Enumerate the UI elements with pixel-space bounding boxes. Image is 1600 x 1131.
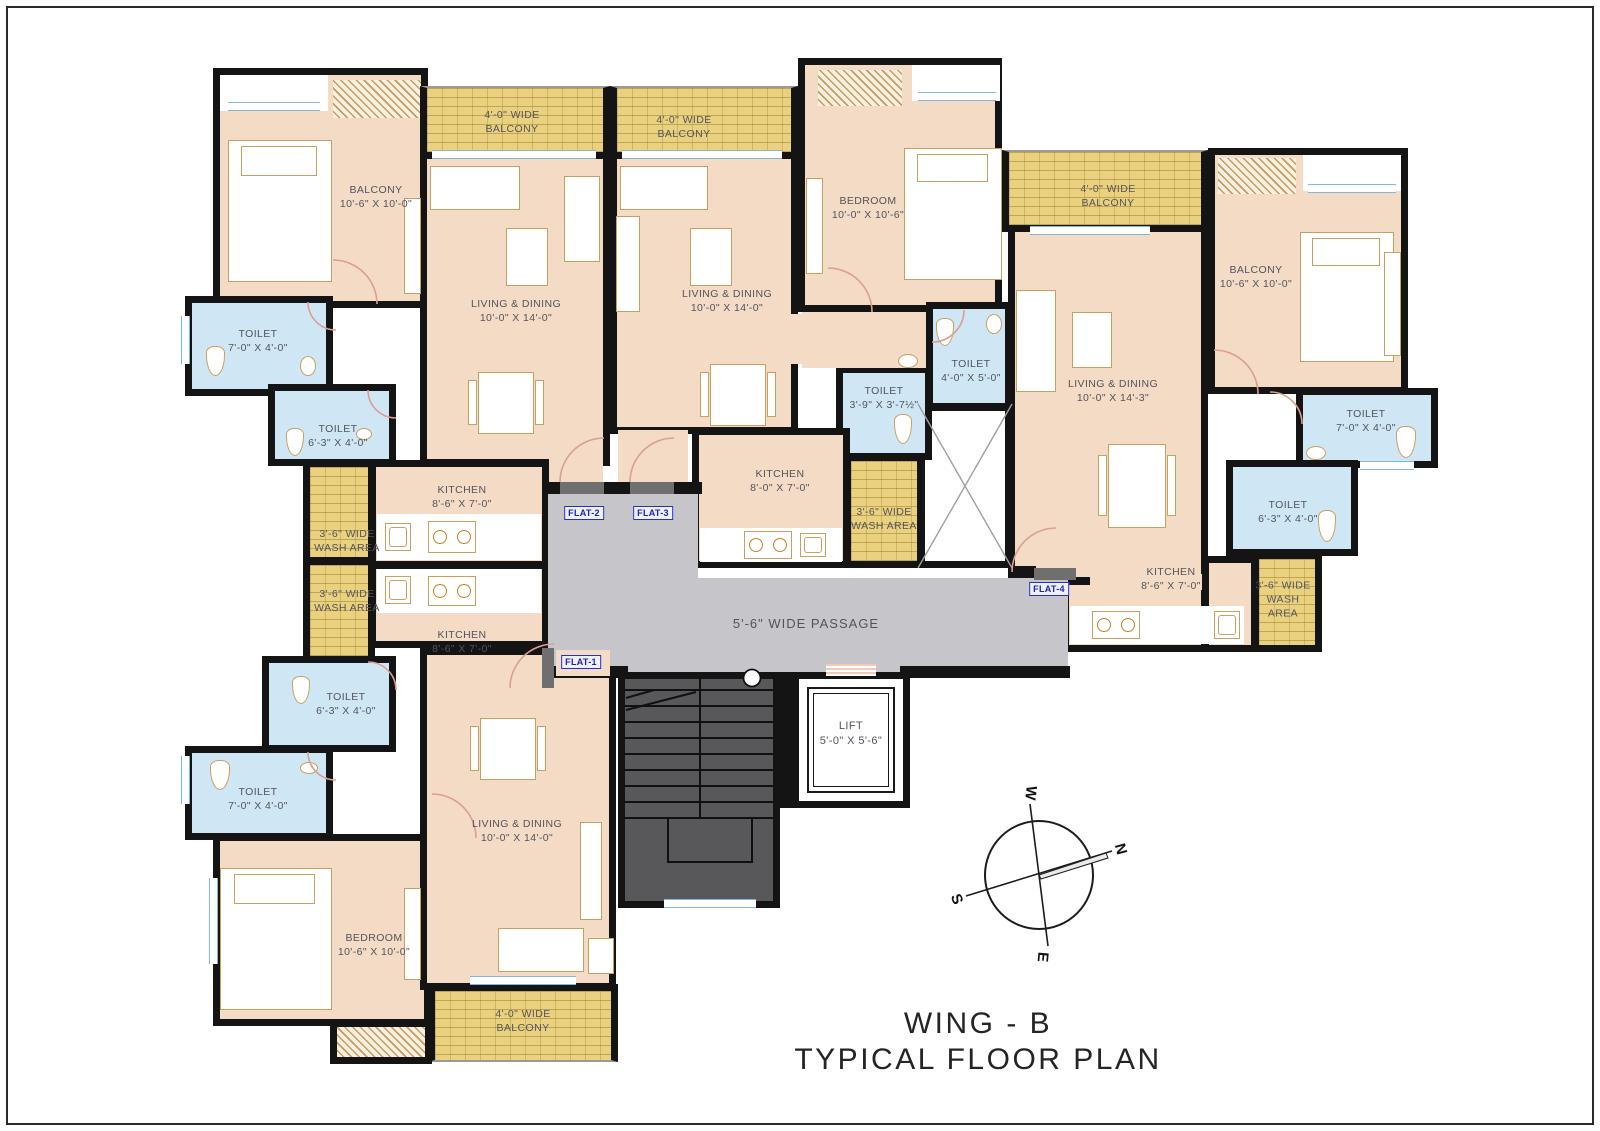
flat-tag-4: FLAT-4 <box>1029 582 1069 596</box>
sofa <box>580 822 602 920</box>
label-line: 6'-3" X 4'-0" <box>308 436 368 450</box>
label-line: BALCONY <box>1080 196 1135 210</box>
flat-tag-2: FLAT-2 <box>564 506 604 520</box>
label-line: 6'-3" X 4'-0" <box>316 704 376 718</box>
sofa <box>564 176 600 262</box>
bed <box>228 140 332 282</box>
sofa <box>1016 290 1056 392</box>
label-line: 3'-6" WIDE <box>314 527 380 541</box>
window <box>664 899 756 908</box>
plan-title-line2: TYPICAL FLOOR PLAN <box>794 1042 1161 1078</box>
burner-icon <box>457 530 471 544</box>
label-line: 8'-6" X 7'-0" <box>432 642 492 656</box>
label-line: WASH AREA <box>314 541 380 555</box>
door-threshold-flat2 <box>560 482 604 494</box>
label-line: 10'-0" X 10'-6" <box>832 208 904 222</box>
room-label-f3-wash: 3'-6" WIDEWASH AREA <box>851 505 917 533</box>
f3-hatch-panel <box>818 70 902 106</box>
window <box>918 92 996 101</box>
room-label-f3-living: LIVING & DINING10'-0" X 14'-0" <box>682 287 772 315</box>
label-line: 4'-0" X 5'-0" <box>941 371 1001 385</box>
hob <box>428 521 476 553</box>
label-line: WASH AREA <box>314 601 380 615</box>
flat-tag-3: FLAT-3 <box>633 506 673 520</box>
room-label-f1-balcony: 4'-0" WIDEBALCONY <box>495 1007 550 1035</box>
label-line: 4'-0" WIDE <box>656 113 711 127</box>
opening-f2-vestibule <box>549 446 603 482</box>
room-label-f1-kitchen: KITCHEN8'-6" X 7'-0" <box>432 628 492 656</box>
label-line: 10'-6" X 10'-0" <box>1220 277 1292 291</box>
label-line: 8'-6" X 7'-0" <box>1141 579 1201 593</box>
room-f3-toilet-a <box>836 366 932 460</box>
room-label-f3-toilet-a: TOILET3'-9" X 3'-7½" <box>849 384 918 412</box>
room-label-f1-bedroom: BEDROOM10'-6" X 10'-0" <box>338 931 410 959</box>
label-line: 5'-0" X 5'-6" <box>820 734 882 749</box>
room-label-f1-toilet-a: TOILET6'-3" X 4'-0" <box>316 690 376 718</box>
coffee-table <box>506 228 548 286</box>
window <box>181 316 190 364</box>
burner-icon <box>433 530 447 544</box>
label-line: TOILET <box>308 422 368 436</box>
label-line: 8'-0" X 7'-0" <box>750 481 810 495</box>
passage-label: 5'-6" WIDE PASSAGE <box>733 615 879 633</box>
label-line: KITCHEN <box>750 467 810 481</box>
room-label-f2-living: LIVING & DINING10'-0" X 14'-0" <box>471 297 561 325</box>
sofa <box>620 166 708 210</box>
label-line: BALCONY <box>484 122 539 136</box>
staircase <box>618 672 780 908</box>
wall-segment <box>776 672 794 808</box>
label-line: BALCONY <box>656 127 711 141</box>
door-threshold-flat3 <box>630 482 674 494</box>
room-label-f2-balcony: 4'-0" WIDEBALCONY <box>484 108 539 136</box>
hob <box>1092 611 1140 639</box>
room-label-f2-toilet-b: TOILET6'-3" X 4'-0" <box>308 422 368 450</box>
wardrobe <box>1384 252 1401 356</box>
f1-hatch-panel <box>330 1020 432 1064</box>
window <box>181 756 190 804</box>
label-line: BALCONY <box>1220 263 1292 277</box>
room-label-f4-kitchen: KITCHEN8'-6" X 7'-0" <box>1141 565 1201 593</box>
room-label-f3-kitchen: KITCHEN8'-0" X 7'-0" <box>750 467 810 495</box>
dining-table <box>710 364 766 426</box>
label-line: 3'-6" WIDE <box>851 505 917 519</box>
flat-tag-1: FLAT-1 <box>561 655 601 669</box>
door-threshold-flat4 <box>1034 568 1076 580</box>
sofa <box>616 216 640 312</box>
label-line: WASH AREA <box>851 519 917 533</box>
f4-hatch-panel <box>1218 158 1296 194</box>
basin-fixture <box>300 356 316 376</box>
label-line: 4'-0" WIDE <box>484 108 539 122</box>
room-label-f3-toilet-b: TOILET4'-0" X 5'-0" <box>941 357 1001 385</box>
room-label-f2-kitchen: KITCHEN8'-6" X 7'-0" <box>432 483 492 511</box>
label-line: LIFT <box>820 719 882 734</box>
label-line: 3'-6" WIDE <box>314 587 380 601</box>
label-line: 3'-9" X 3'-7½" <box>849 398 918 412</box>
coffee-table <box>690 228 732 286</box>
wall-segment <box>900 666 1070 678</box>
dining-table <box>480 718 536 780</box>
bed <box>220 868 332 1010</box>
label-line: TOILET <box>1336 407 1396 421</box>
kitchen-sink <box>1214 611 1240 639</box>
lift-door <box>826 664 876 676</box>
f2-hatch-panel <box>333 80 421 118</box>
window <box>209 878 218 964</box>
basin-fixture <box>1306 446 1326 460</box>
kitchen-sink <box>385 576 411 604</box>
label-line: TOILET <box>316 690 376 704</box>
room-label-f4-toilet-a: TOILET7'-0" X 4'-0" <box>1336 407 1396 435</box>
room-label-f1-living: LIVING & DINING10'-0" X 14'-0" <box>472 817 562 845</box>
room-label-f4-toilet-b: TOILET6'-3" X 4'-0" <box>1258 498 1318 526</box>
room-label-f3-balcony: 4'-0" WIDEBALCONY <box>656 113 711 141</box>
sofa <box>498 928 584 972</box>
opening-f3-vestibule <box>618 430 688 482</box>
room-label-f1-toilet-b: TOILET7'-0" X 4'-0" <box>228 785 288 813</box>
hob <box>744 531 792 559</box>
dining-table <box>1108 444 1166 528</box>
window <box>470 976 576 985</box>
label-line: TOILET <box>228 327 288 341</box>
label-line: LIVING & DINING <box>682 287 772 301</box>
floor-plan-page: W N S E BALCONY10'-6" X 10'-0" 4'-0" WID… <box>0 0 1600 1131</box>
opening-f3-corridor-2 <box>791 314 809 364</box>
label-line: 7'-0" X 4'-0" <box>1336 421 1396 435</box>
hob <box>428 576 476 606</box>
label-line: 10'-0" X 14'-0" <box>471 311 561 325</box>
coffee-table <box>1072 312 1112 368</box>
dining-table <box>478 372 534 434</box>
window <box>228 102 320 111</box>
door-threshold-flat1 <box>542 648 554 688</box>
label-line: 10'-0" X 14'-3" <box>1068 391 1158 405</box>
label-line: 3'-6" WIDE <box>1255 579 1310 593</box>
label-line: LIVING & DINING <box>471 297 561 311</box>
lift-label: LIFT5'-0" X 5'-6" <box>820 719 882 749</box>
plan-title: WING - B TYPICAL FLOOR PLAN <box>794 1006 1161 1078</box>
label-line: BALCONY <box>340 183 412 197</box>
label-line: BALCONY <box>495 1021 550 1035</box>
plan-title-line1: WING - B <box>794 1006 1161 1042</box>
room-label-f4-bedroom: BALCONY10'-6" X 10'-0" <box>1220 263 1292 291</box>
wardrobe <box>404 198 421 294</box>
label-line: 10'-0" X 14'-0" <box>472 831 562 845</box>
room-label-f1-wash: 3'-6" WIDEWASH AREA <box>314 587 380 615</box>
label-line: KITCHEN <box>432 483 492 497</box>
room-label-f3-bedroom: BEDROOM10'-0" X 10'-6" <box>832 194 904 222</box>
room-label-f2-toilet-a: TOILET7'-0" X 4'-0" <box>228 327 288 355</box>
label-line: 5'-6" WIDE PASSAGE <box>733 615 879 633</box>
label-line: LIVING & DINING <box>1068 377 1158 391</box>
burner-icon <box>749 538 763 552</box>
burner-icon <box>457 584 471 598</box>
duct-shaft <box>918 404 1012 568</box>
label-line: 6'-3" X 4'-0" <box>1258 512 1318 526</box>
wall-segment <box>1008 566 1036 578</box>
label-line: AREA <box>1255 607 1310 621</box>
kitchen-sink <box>385 523 411 551</box>
sofa <box>430 166 520 210</box>
label-line: 7'-0" X 4'-0" <box>228 341 288 355</box>
burner-icon <box>433 584 447 598</box>
window <box>1030 226 1150 235</box>
label-line: 10'-0" X 14'-0" <box>682 301 772 315</box>
window <box>1360 461 1414 470</box>
label-line: 7'-0" X 4'-0" <box>228 799 288 813</box>
label-line: KITCHEN <box>1141 565 1201 579</box>
label-line: KITCHEN <box>432 628 492 642</box>
label-line: 8'-6" X 7'-0" <box>432 497 492 511</box>
label-line: TOILET <box>849 384 918 398</box>
wardrobe <box>806 178 823 274</box>
bed <box>1300 232 1394 362</box>
label-line: WASH <box>1255 593 1310 607</box>
room-label-f4-balcony: 4'-0" WIDEBALCONY <box>1080 182 1135 210</box>
window <box>622 150 782 159</box>
room-label-f2-bedroom: BALCONY10'-6" X 10'-0" <box>340 183 412 211</box>
label-line: TOILET <box>941 357 1001 371</box>
label-line: BEDROOM <box>832 194 904 208</box>
label-line: LIVING & DINING <box>472 817 562 831</box>
room-label-f4-living: LIVING & DINING10'-0" X 14'-3" <box>1068 377 1158 405</box>
burner-icon <box>1121 618 1135 632</box>
tv-unit <box>588 938 614 974</box>
window <box>432 150 596 159</box>
basin-fixture <box>898 354 918 368</box>
room-label-f4-wash: 3'-6" WIDEWASHAREA <box>1255 579 1310 622</box>
bed <box>904 148 1002 280</box>
label-line: 10'-6" X 10'-0" <box>338 945 410 959</box>
burner-icon <box>773 538 787 552</box>
label-line: BEDROOM <box>338 931 410 945</box>
label-line: 4'-0" WIDE <box>1080 182 1135 196</box>
label-line: 4'-0" WIDE <box>495 1007 550 1021</box>
kitchen-sink <box>800 533 826 557</box>
label-line: TOILET <box>1258 498 1318 512</box>
label-line: 10'-6" X 10'-0" <box>340 197 412 211</box>
label-line: TOILET <box>228 785 288 799</box>
window <box>1308 184 1396 193</box>
basin-fixture <box>300 762 318 774</box>
room-label-f2-wash: 3'-6" WIDEWASH AREA <box>314 527 380 555</box>
burner-icon <box>1097 618 1111 632</box>
basin-fixture <box>986 314 1002 334</box>
